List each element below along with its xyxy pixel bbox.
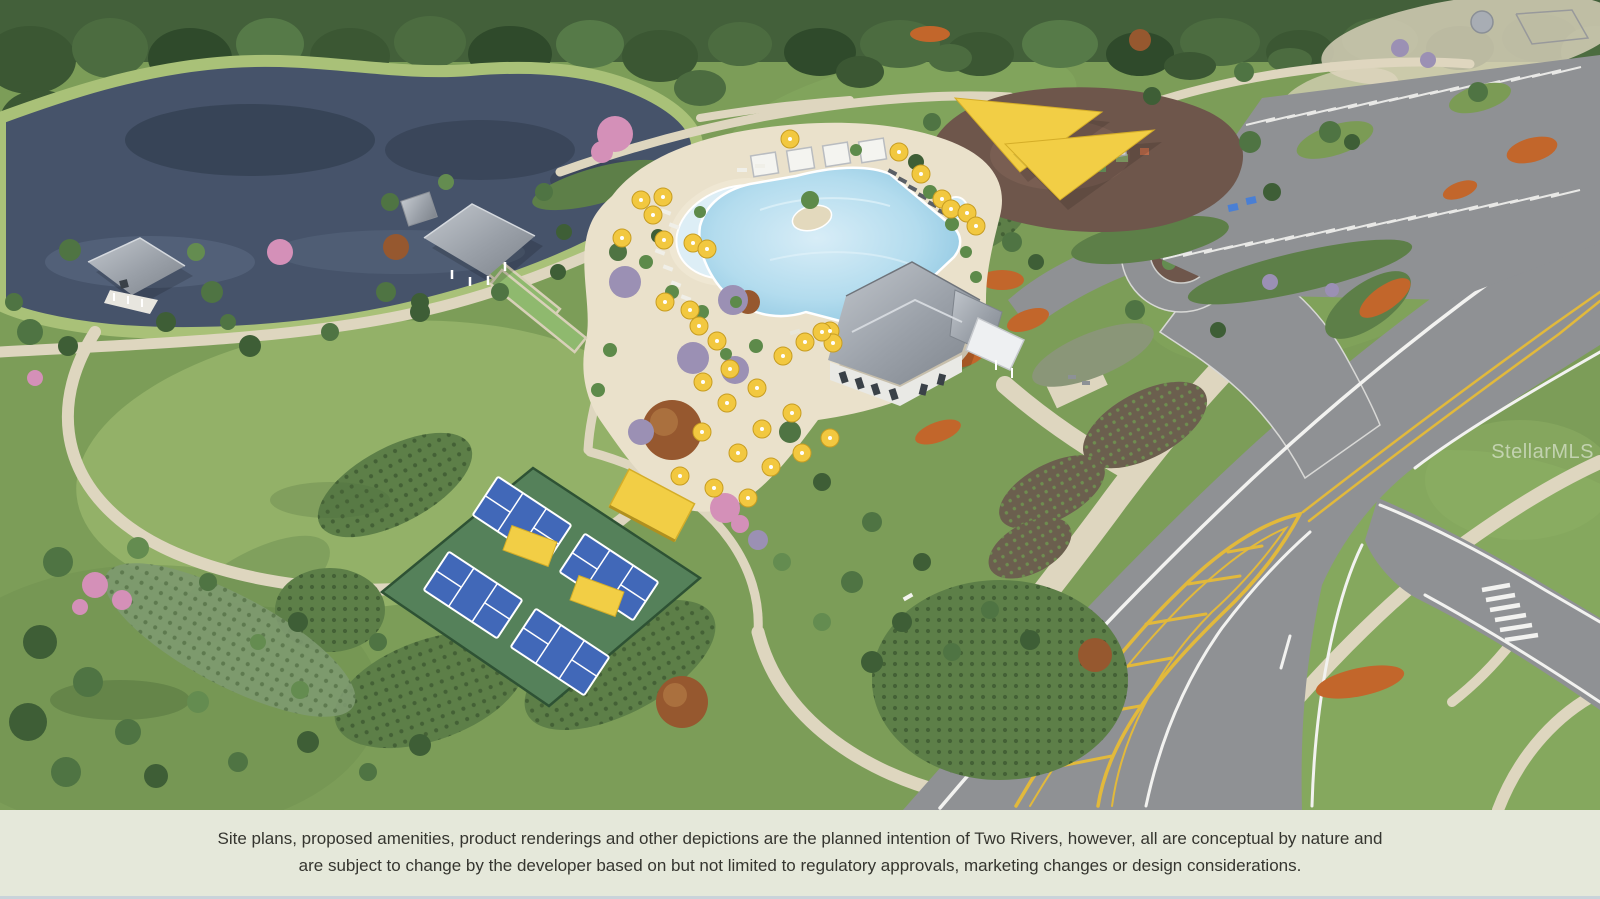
site-plan-svg: StellarMLS (0, 0, 1600, 810)
disclaimer-bar: Site plans, proposed amenities, product … (0, 810, 1600, 899)
disclaimer-line-1: Site plans, proposed amenities, product … (0, 825, 1600, 852)
bench (1082, 381, 1090, 385)
stellar-mls-watermark: StellarMLS (1491, 441, 1594, 463)
gazebo-dome (1471, 11, 1493, 33)
disclaimer-line-2: are subject to change by the developer b… (0, 852, 1600, 879)
listing-photo-page: StellarMLS Site plans, proposed amenitie… (0, 0, 1600, 899)
aerial-rendering: StellarMLS (0, 0, 1600, 810)
bench (1068, 375, 1076, 379)
